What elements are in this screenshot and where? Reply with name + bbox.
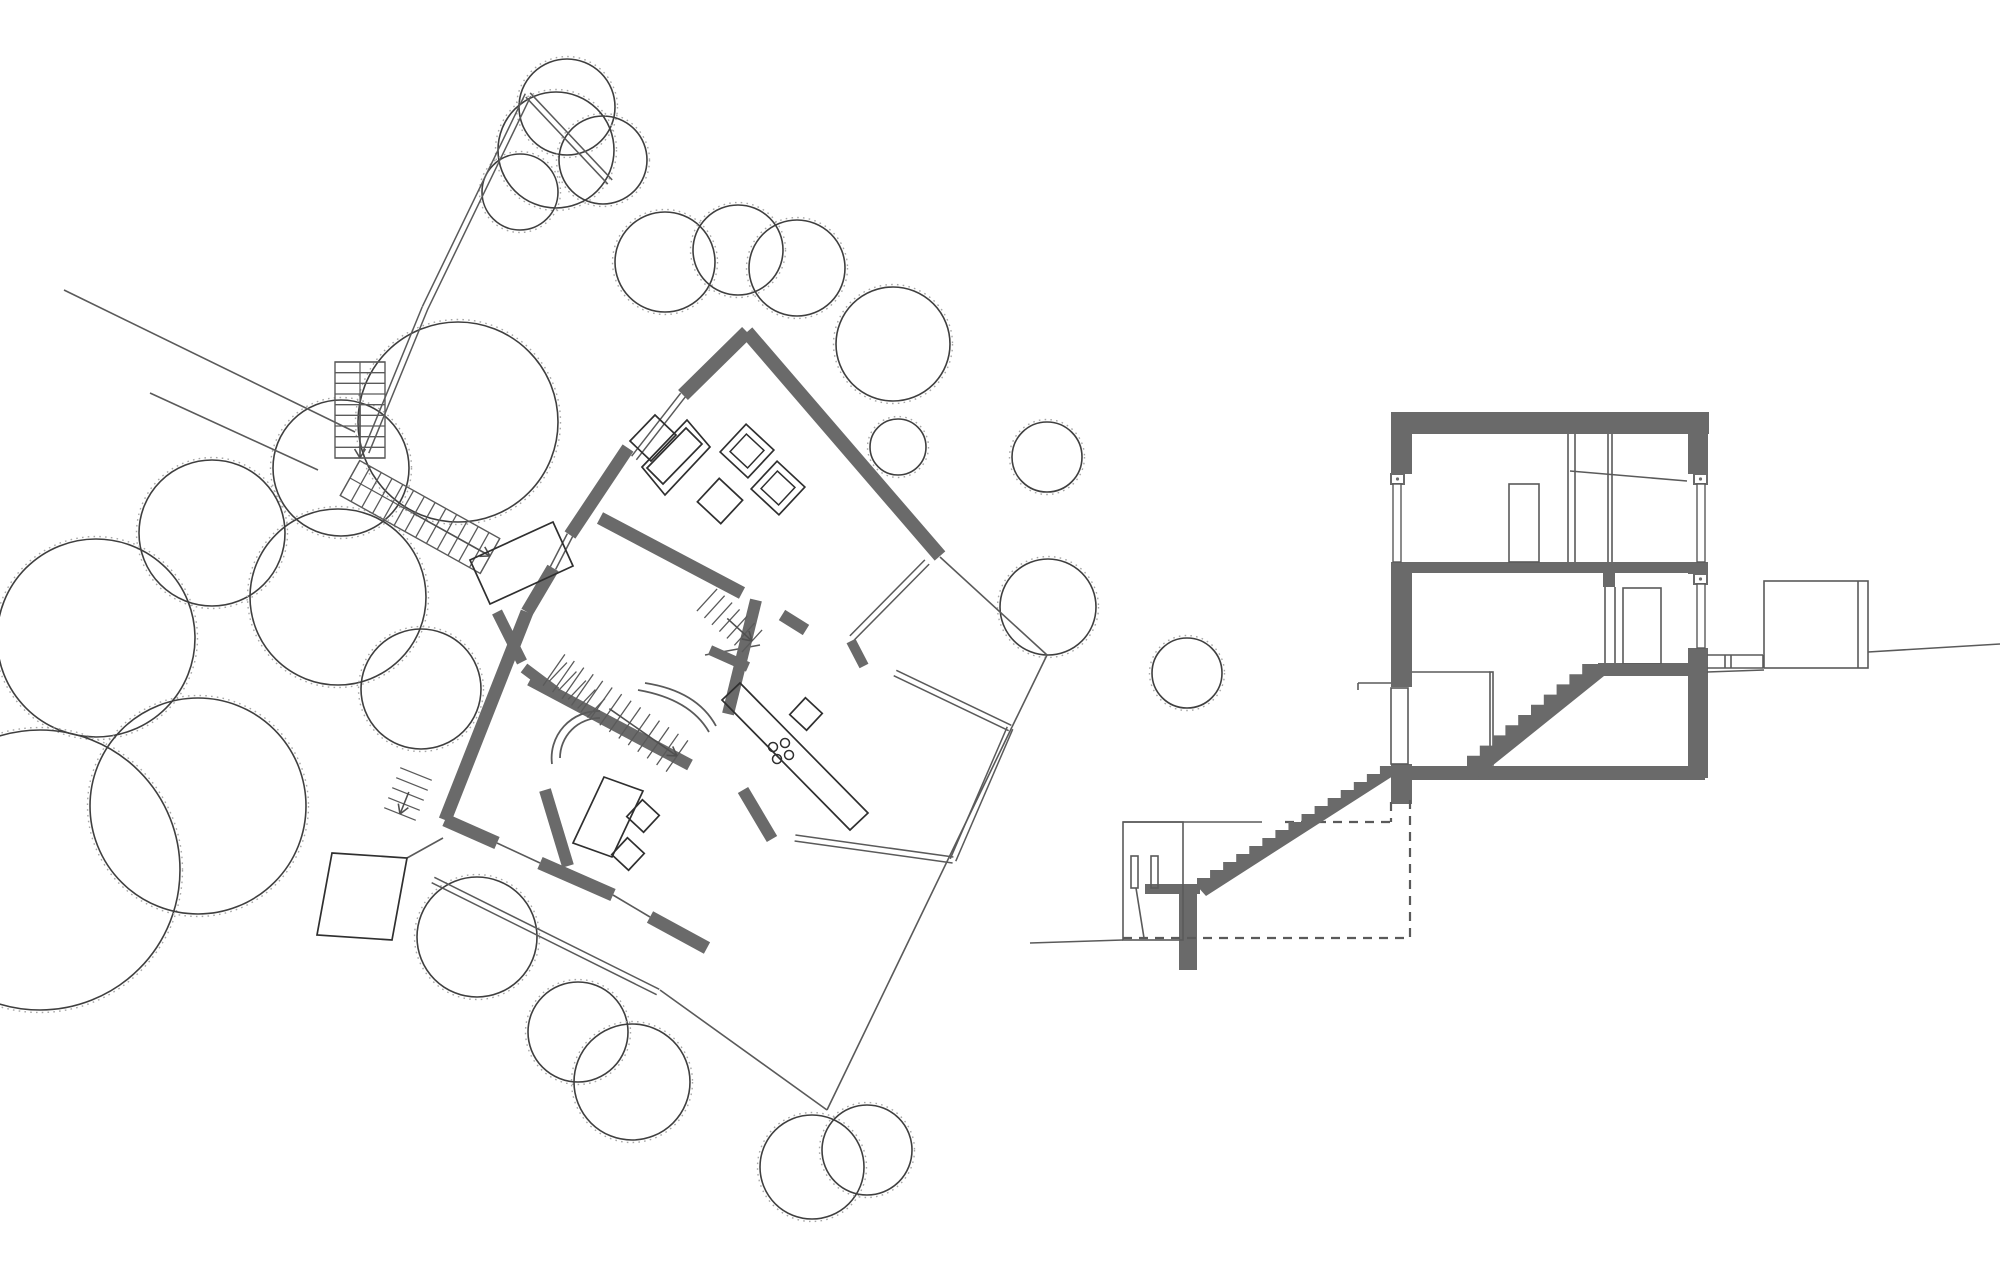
section-wall: [1403, 766, 1705, 780]
tree-speckle: [415, 875, 540, 1000]
tree-canopy: [1152, 638, 1222, 708]
plan-quad: [317, 853, 407, 940]
section-line: [1030, 940, 1123, 943]
tree-speckle: [572, 1022, 693, 1143]
section-outline: [1131, 856, 1138, 888]
section-outline: [1151, 856, 1158, 888]
tree-canopy: [417, 877, 537, 997]
tree-canopies: [0, 57, 1225, 1222]
tree-speckle: [868, 417, 929, 478]
plan-wall: [782, 615, 806, 630]
tree-canopy: [361, 629, 481, 749]
window-fitting-dot: [1396, 477, 1399, 480]
rot-square: [790, 698, 823, 731]
drawing-canvas: [0, 0, 2000, 1284]
double-line: [896, 670, 1011, 725]
section-wall: [1391, 562, 1412, 687]
double-line: [432, 883, 657, 995]
plan-wall: [600, 518, 742, 593]
site-line: [940, 557, 1047, 655]
curved-wall: [638, 690, 709, 732]
tree-canopy: [749, 220, 845, 316]
window-pane: [1697, 584, 1705, 648]
hob-burner: [781, 739, 790, 748]
tree-speckle: [137, 458, 288, 609]
plan-wall: [743, 790, 772, 839]
tree-speckle: [747, 218, 848, 319]
tree-speckle: [0, 537, 198, 740]
tree-canopy: [273, 400, 409, 536]
tree-canopy: [0, 730, 180, 1010]
tree-canopy: [760, 1115, 864, 1219]
section-wall: [1391, 412, 1709, 434]
plan-wall: [747, 332, 940, 556]
section-wall: [1391, 434, 1412, 474]
window-fitting-dot: [1699, 477, 1702, 480]
tree-canopy: [574, 1024, 690, 1140]
hob-burner: [769, 743, 778, 752]
double-line: [530, 93, 612, 180]
tree-speckle: [1150, 636, 1225, 711]
rot-square: [697, 478, 742, 523]
site-line: [407, 838, 443, 858]
tree-speckle: [517, 57, 618, 158]
architectural-drawing-page: [0, 0, 2000, 1284]
tree-speckle: [526, 980, 631, 1085]
plan-wall: [445, 820, 497, 843]
plan-wall: [527, 568, 553, 612]
tree-speckle: [613, 210, 718, 315]
double-line: [363, 307, 422, 451]
tree-canopy: [1000, 559, 1096, 655]
tree-canopy: [836, 287, 950, 401]
plan-quad: [573, 777, 643, 857]
tree-canopy: [870, 419, 926, 475]
tree-speckle: [0, 728, 183, 1013]
site-line: [497, 843, 540, 863]
site-line: [150, 393, 318, 470]
section-wall: [1179, 894, 1197, 970]
double-line: [956, 729, 1013, 861]
section-outline: [1623, 588, 1661, 664]
double-line: [850, 560, 925, 636]
tree-speckle: [998, 557, 1099, 658]
tree-speckle: [758, 1113, 867, 1222]
section-stair: [1197, 766, 1393, 896]
tree-speckle: [557, 114, 650, 207]
stair-arrow-head: [398, 804, 400, 814]
double-line: [526, 97, 608, 184]
window-fitting-dot: [1699, 577, 1702, 580]
section-wall: [1412, 562, 1688, 573]
tree-canopy: [358, 322, 558, 522]
site-line: [827, 727, 1012, 1110]
section-outline: [1509, 484, 1539, 562]
double-line: [950, 727, 1007, 859]
hob-burner: [785, 751, 794, 760]
double-line: [795, 835, 953, 857]
section-wall: [1688, 434, 1708, 474]
tree-canopy: [822, 1105, 912, 1195]
double-line: [854, 564, 929, 640]
tree-speckle: [834, 285, 953, 404]
section-outline: [1123, 822, 1183, 940]
tree-canopy: [528, 982, 628, 1082]
site-line: [1012, 655, 1047, 727]
section-line: [1570, 471, 1687, 481]
stair-arrow-head: [667, 755, 677, 756]
window-pane: [1697, 484, 1705, 562]
tree-canopy: [139, 460, 285, 606]
rot-square-inner: [730, 434, 764, 468]
tree-speckle: [496, 90, 617, 211]
site-line: [613, 895, 650, 917]
plan-wall: [683, 332, 747, 395]
site-line: [660, 990, 827, 1110]
section-outline: [1391, 688, 1408, 764]
section-wall: [1145, 884, 1200, 894]
double-line: [795, 841, 953, 863]
plan-wall: [851, 641, 864, 666]
section-wall: [1688, 562, 1708, 574]
building-section: [1030, 412, 2000, 970]
section-wall: [1688, 648, 1708, 778]
tree-speckle: [356, 320, 561, 525]
rot-square: [612, 838, 645, 871]
tree-canopy: [1012, 422, 1082, 492]
stair-tread: [396, 778, 428, 791]
tree-speckle: [820, 1103, 915, 1198]
tree-speckle: [88, 696, 309, 917]
section-stair: [1467, 664, 1688, 778]
section-line: [1136, 888, 1144, 938]
rot-square: [720, 424, 774, 478]
double-line: [428, 96, 531, 309]
floor-plan: [335, 332, 940, 948]
section-line: [1707, 670, 1764, 672]
site-line: [64, 290, 355, 432]
plan-wall: [545, 790, 568, 866]
site-lines: [64, 93, 1047, 1110]
tree-canopy: [498, 92, 614, 208]
plan-wall: [540, 863, 613, 895]
plan-quad: [722, 683, 868, 830]
window-pane: [1393, 484, 1401, 562]
tree-speckle: [359, 627, 484, 752]
section-wall: [1603, 570, 1615, 587]
double-line: [422, 94, 525, 307]
rot-square: [751, 461, 805, 515]
rot-square-inner: [761, 471, 795, 505]
section-outline: [1764, 581, 1868, 668]
tree-canopy: [90, 698, 306, 914]
plan-quad: [642, 420, 710, 495]
plan-wall: [650, 917, 707, 948]
double-line: [434, 877, 659, 989]
stair-tread: [400, 768, 432, 781]
tree-canopy: [0, 539, 195, 737]
tree-speckle: [271, 398, 412, 539]
tree-canopy: [693, 205, 783, 295]
stair-tread: [571, 674, 593, 705]
stair-arrow-head: [355, 449, 360, 458]
section-line: [1868, 644, 2000, 652]
tree-speckle: [1010, 420, 1085, 495]
tree-canopy: [482, 154, 558, 230]
double-line: [894, 676, 1009, 731]
tree-speckle: [248, 507, 429, 688]
double-line: [632, 393, 681, 456]
stair-tread: [543, 654, 565, 685]
tree-speckle: [691, 203, 786, 298]
tree-canopy: [559, 116, 647, 204]
